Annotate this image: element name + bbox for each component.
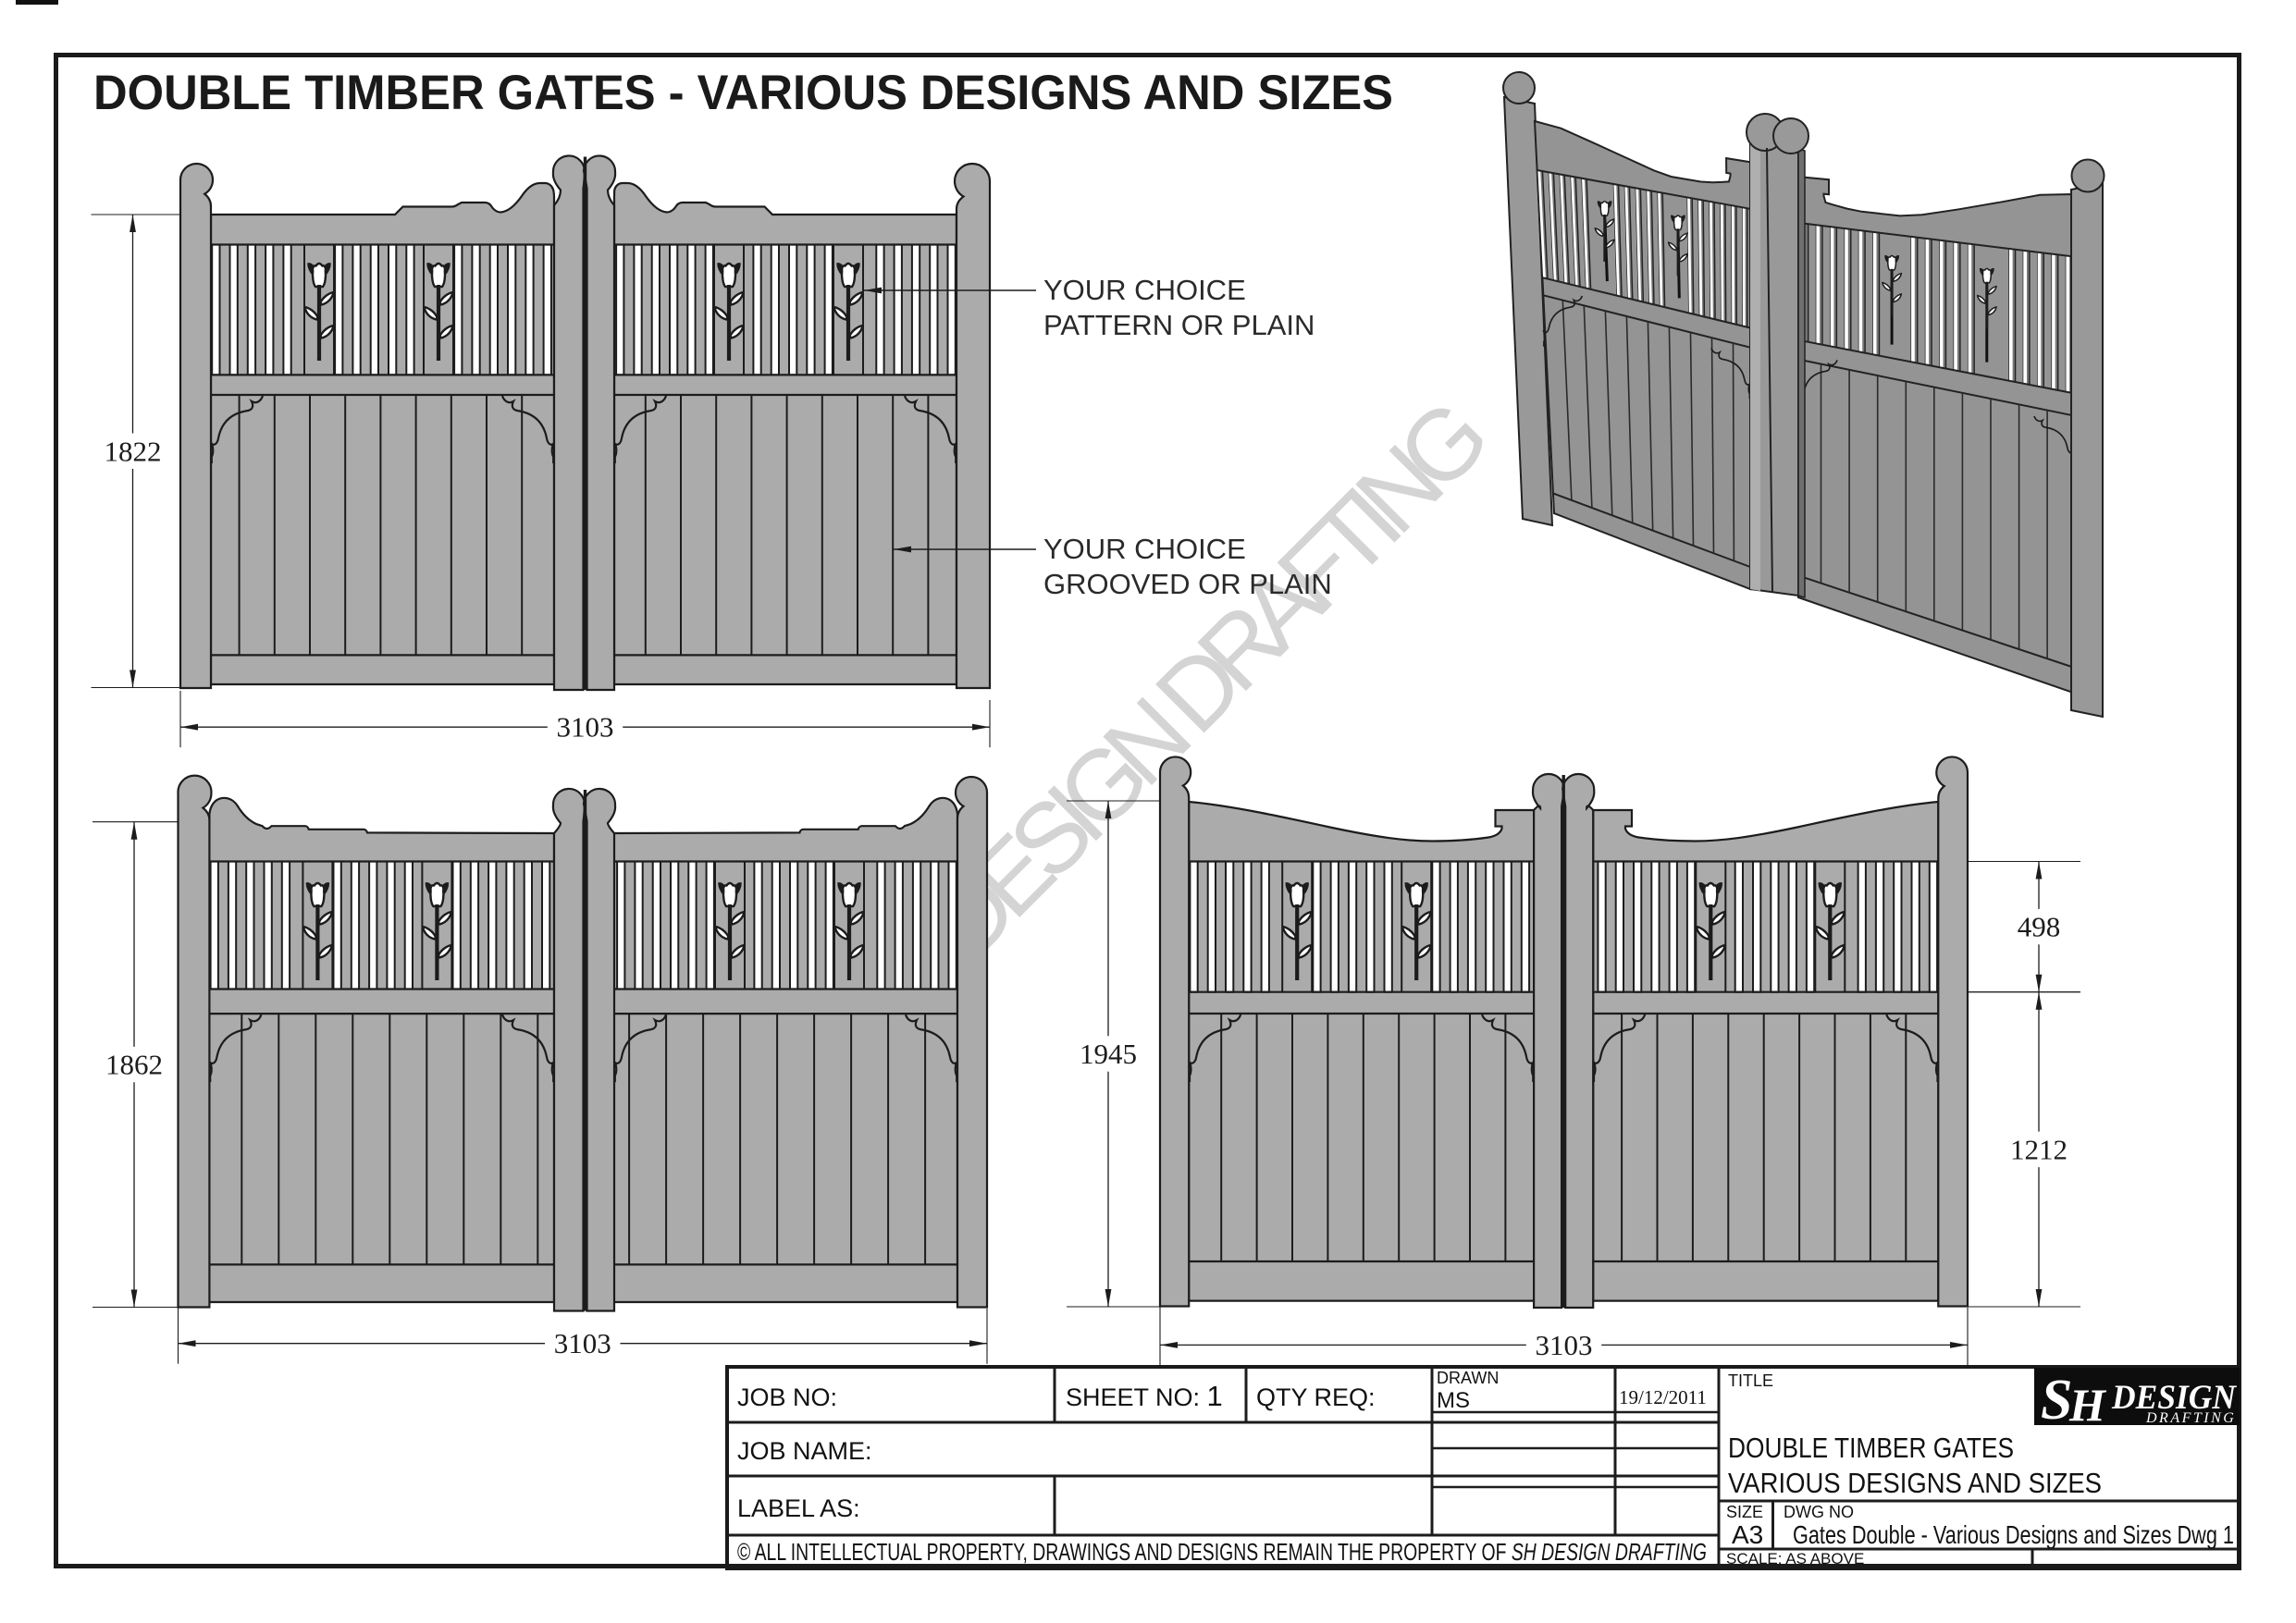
svg-text:LABEL AS:: LABEL AS: [737, 1494, 860, 1522]
svg-text:SIZE: SIZE [1726, 1503, 1763, 1521]
svg-text:H: H [2068, 1379, 2107, 1431]
svg-text:3103: 3103 [557, 711, 614, 744]
svg-text:DWG NO: DWG NO [1784, 1503, 1854, 1521]
svg-text:VARIOUS DESIGNS AND SIZES: VARIOUS DESIGNS AND SIZES [1728, 1467, 2102, 1499]
svg-text:1822: 1822 [105, 435, 162, 467]
svg-text:S: S [2041, 1369, 2072, 1432]
svg-text:DOUBLE TIMBER GATES - VARIOUS: DOUBLE TIMBER GATES - VARIOUS DESIGNS AN… [93, 66, 1393, 120]
svg-text:TITLE: TITLE [1728, 1371, 1773, 1390]
svg-text:JOB NAME:: JOB NAME: [737, 1437, 872, 1465]
svg-text:YOUR CHOICE: YOUR CHOICE [1043, 533, 1246, 565]
svg-text:DRAWN: DRAWN [1437, 1369, 1499, 1387]
svg-text:3103: 3103 [554, 1327, 611, 1359]
svg-text:PATTERN OR PLAIN: PATTERN OR PLAIN [1043, 309, 1315, 341]
svg-text:MS: MS [1437, 1388, 1470, 1413]
svg-text:1212: 1212 [2010, 1133, 2068, 1165]
svg-text:1862: 1862 [105, 1049, 163, 1081]
svg-text:JOB NO:: JOB NO: [737, 1383, 837, 1411]
svg-text:YOUR CHOICE: YOUR CHOICE [1043, 274, 1246, 306]
svg-text:DRAFTING: DRAFTING [2145, 1410, 2236, 1426]
svg-text:SCALE: AS ABOVE: SCALE: AS ABOVE [1726, 1550, 1864, 1568]
svg-text:DOUBLE TIMBER GATES: DOUBLE TIMBER GATES [1728, 1432, 2014, 1464]
svg-text:Gates Double - Various Designs: Gates Double - Various Designs and Sizes… [1793, 1520, 2234, 1549]
svg-text:SHEET NO: 1: SHEET NO: 1 [1066, 1380, 1223, 1412]
svg-text:19/12/2011: 19/12/2011 [1619, 1386, 1707, 1408]
svg-text:1945: 1945 [1080, 1038, 1137, 1070]
svg-text:QTY REQ:: QTY REQ: [1256, 1383, 1376, 1411]
svg-text:A3: A3 [1732, 1520, 1763, 1549]
svg-text:3103: 3103 [1536, 1329, 1593, 1361]
svg-text:498: 498 [2018, 911, 2061, 943]
svg-text:GROOVED OR PLAIN: GROOVED OR PLAIN [1043, 568, 1332, 600]
svg-text:© ALL INTELLECTUAL PROPERTY,: © ALL INTELLECTUAL PROPERTY, DRAWINGS AN… [737, 1538, 1707, 1566]
